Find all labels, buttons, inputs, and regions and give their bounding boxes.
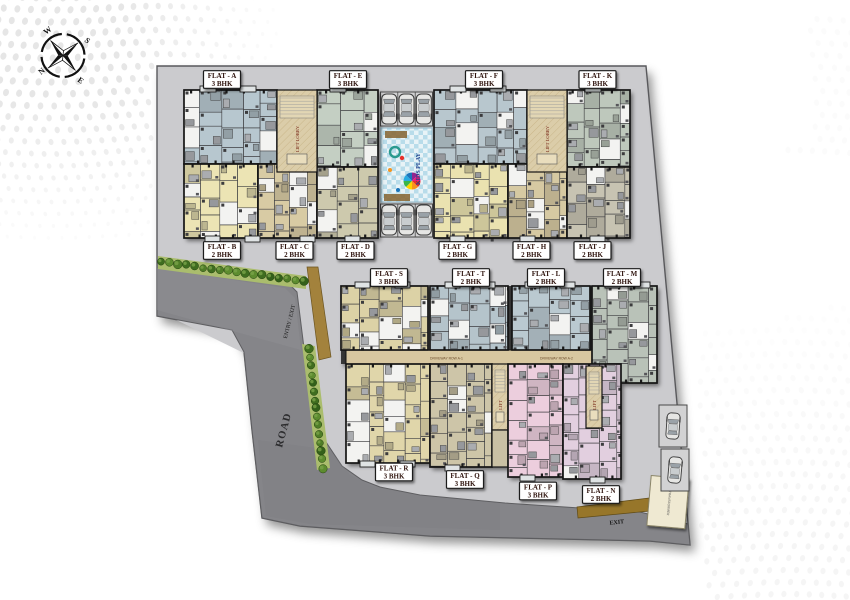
svg-text:FLAT - T: FLAT - T <box>457 270 486 278</box>
svg-text:2 BHK: 2 BHK <box>212 251 233 259</box>
svg-text:FLAT - A: FLAT - A <box>208 72 237 80</box>
svg-text:FLAT - R: FLAT - R <box>380 464 410 472</box>
svg-text:3 BHK: 3 BHK <box>587 80 608 88</box>
svg-text:FLAT - P: FLAT - P <box>524 483 553 491</box>
svg-text:3 BHK: 3 BHK <box>455 480 476 488</box>
svg-text:FLAT - G: FLAT - G <box>443 243 473 251</box>
svg-text:FLAT - F: FLAT - F <box>470 72 498 80</box>
svg-text:2 BHK: 2 BHK <box>582 251 603 259</box>
svg-text:3 BHK: 3 BHK <box>384 472 405 480</box>
svg-text:FLAT - M: FLAT - M <box>607 270 638 278</box>
svg-text:LIFT LOBBY: LIFT LOBBY <box>545 125 550 152</box>
svg-text:2 BHK: 2 BHK <box>447 251 468 259</box>
svg-text:2 BHK: 2 BHK <box>284 251 305 259</box>
svg-text:DRIVEWAY ROW A-2: DRIVEWAY ROW A-2 <box>540 357 573 361</box>
svg-text:2 BHK: 2 BHK <box>521 251 542 259</box>
svg-text:3 BHK: 3 BHK <box>338 80 359 88</box>
svg-text:FLAT - S: FLAT - S <box>375 270 403 278</box>
svg-text:KIDS PLAY: KIDS PLAY <box>416 152 422 185</box>
svg-text:3 BHK: 3 BHK <box>379 278 400 286</box>
svg-text:FLAT - K: FLAT - K <box>583 72 613 80</box>
svg-text:LIFT: LIFT <box>498 400 503 410</box>
svg-text:FLAT - L: FLAT - L <box>532 270 561 278</box>
svg-text:2 BHK: 2 BHK <box>591 495 612 503</box>
svg-text:FLAT - D: FLAT - D <box>341 243 370 251</box>
svg-text:DRIVEWAY ROW A-1: DRIVEWAY ROW A-1 <box>430 357 463 361</box>
svg-text:2 BHK: 2 BHK <box>612 278 633 286</box>
svg-text:3 BHK: 3 BHK <box>528 491 549 499</box>
svg-text:FLAT - E: FLAT - E <box>334 72 363 80</box>
svg-text:2 BHK: 2 BHK <box>536 278 557 286</box>
svg-text:LIFT LOBBY: LIFT LOBBY <box>295 125 300 152</box>
svg-text:FLAT - N: FLAT - N <box>587 487 616 495</box>
svg-text:LIFT: LIFT <box>592 400 597 410</box>
svg-text:FLAT - Q: FLAT - Q <box>450 472 480 480</box>
svg-text:FLAT - H: FLAT - H <box>517 243 547 251</box>
svg-text:2 BHK: 2 BHK <box>461 278 482 286</box>
svg-text:FLAT - J: FLAT - J <box>579 243 607 251</box>
svg-text:3 BHK: 3 BHK <box>474 80 495 88</box>
svg-text:3 BHK: 3 BHK <box>212 80 233 88</box>
svg-text:FLAT - B: FLAT - B <box>208 243 237 251</box>
svg-text:FLAT - C: FLAT - C <box>280 243 309 251</box>
svg-text:2 BHK: 2 BHK <box>345 251 366 259</box>
